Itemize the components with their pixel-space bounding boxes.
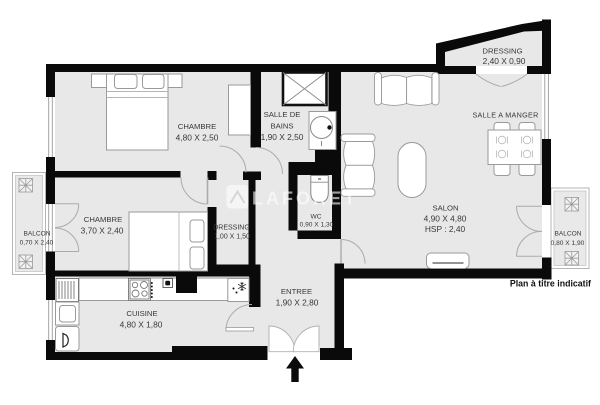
svg-text:CHAMBRE: CHAMBRE <box>84 215 122 224</box>
svg-text:CUISINE: CUISINE <box>126 309 157 318</box>
svg-text:Plan à titre indicatif: Plan à titre indicatif <box>510 279 591 289</box>
svg-text:1,00 X 1,50: 1,00 X 1,50 <box>214 234 250 241</box>
svg-text:ENTREE: ENTREE <box>281 287 312 296</box>
svg-text:SALON: SALON <box>432 204 458 213</box>
svg-text:0,80 X 1,90: 0,80 X 1,90 <box>551 240 585 247</box>
svg-text:HSP : 2,40: HSP : 2,40 <box>425 224 466 234</box>
svg-text:SALLE DE: SALLE DE <box>264 110 301 119</box>
svg-text:4,80 X 2,50: 4,80 X 2,50 <box>176 133 219 143</box>
svg-text:BALCON: BALCON <box>554 231 581 238</box>
svg-text:4,80 X 1,80: 4,80 X 1,80 <box>120 320 163 330</box>
svg-text:2,40 X 0,90: 2,40 X 0,90 <box>483 56 526 66</box>
svg-text:BALCON: BALCON <box>23 231 50 238</box>
svg-text:1,90 X 2,50: 1,90 X 2,50 <box>261 132 304 142</box>
svg-text:CHAMBRE: CHAMBRE <box>178 122 216 131</box>
svg-text:0,90 X 1,30: 0,90 X 1,30 <box>300 222 334 229</box>
svg-text:1,90 X 2,80: 1,90 X 2,80 <box>276 298 319 308</box>
svg-text:DRESSING: DRESSING <box>482 47 522 56</box>
svg-text:WC: WC <box>311 214 322 221</box>
svg-text:3,70 X 2,40: 3,70 X 2,40 <box>81 226 124 236</box>
svg-text:DRESSING: DRESSING <box>213 225 250 232</box>
svg-text:LAFORET: LAFORET <box>252 189 358 209</box>
svg-text:SALLE A MANGER: SALLE A MANGER <box>472 111 538 120</box>
svg-text:0,70 X 2,40: 0,70 X 2,40 <box>20 240 54 247</box>
svg-text:BAINS: BAINS <box>270 122 293 131</box>
svg-text:4,90 X 4,80: 4,90 X 4,80 <box>424 214 467 224</box>
